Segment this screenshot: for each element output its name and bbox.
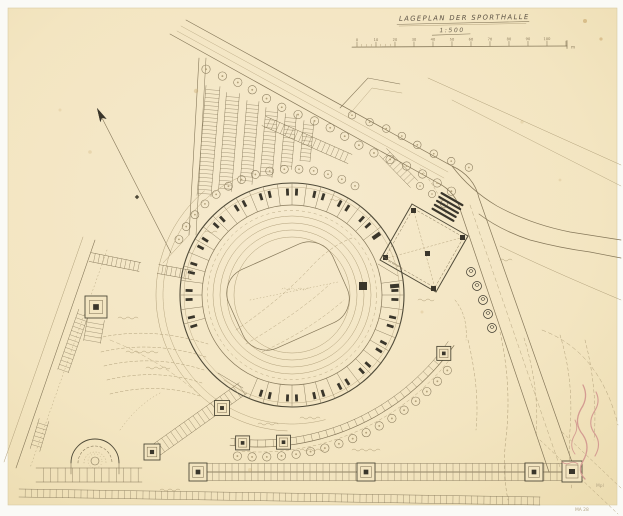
site-plan-drawing: LAGEPLAN DER SPORTHALLE 1:500 m 01020304… (0, 0, 623, 516)
scan-canvas: LAGEPLAN DER SPORTHALLE 1:500 m 01020304… (0, 0, 623, 516)
corner-pencil-mark: Mpl (596, 483, 604, 489)
svg-text:100: 100 (544, 37, 552, 41)
svg-text:80: 80 (507, 37, 512, 41)
svg-text:20: 20 (393, 38, 398, 42)
svg-text:60: 60 (469, 37, 474, 41)
svg-text:30: 30 (412, 38, 417, 42)
svg-text:90: 90 (526, 37, 531, 41)
svg-text:10: 10 (374, 38, 379, 42)
svg-text:70: 70 (488, 37, 493, 41)
svg-text:40: 40 (431, 38, 436, 42)
margin-pencil-mark: MA 28 (575, 507, 589, 513)
svg-text:50: 50 (450, 38, 455, 42)
scale-unit-label: m (571, 45, 575, 50)
scale-ratio-text: 1:500 (439, 27, 464, 34)
